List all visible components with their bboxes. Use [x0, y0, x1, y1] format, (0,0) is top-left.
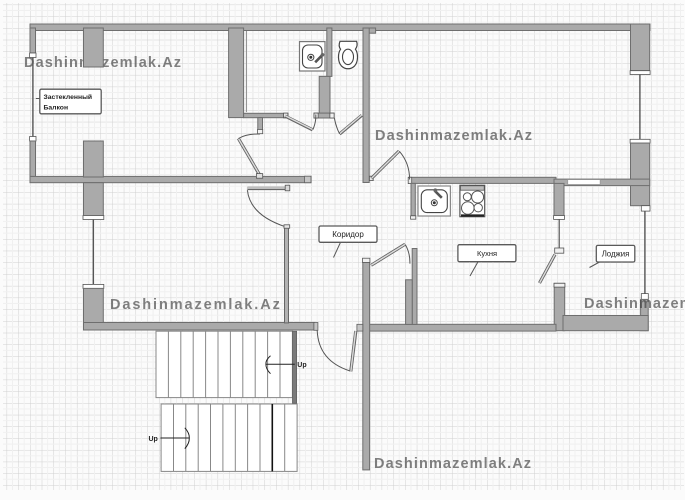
svg-text:Лоджия: Лоджия: [602, 250, 630, 259]
svg-text:Коридор: Коридор: [332, 230, 364, 239]
svg-text:Балкон: Балкон: [44, 105, 69, 112]
svg-text:Dashinmazemlak.Az: Dashinmazemlak.Az: [374, 456, 532, 472]
svg-text:Dashinmazemlak.Az: Dashinmazemlak.Az: [584, 296, 685, 312]
svg-text:Dashinmazemlak.Az: Dashinmazemlak.Az: [375, 128, 533, 144]
svg-text:Кухня: Кухня: [477, 249, 497, 258]
svg-text:Dashinmazemlak.Az: Dashinmazemlak.Az: [110, 297, 282, 313]
svg-text:Застекленный: Застекленный: [44, 93, 93, 101]
svg-text:Up: Up: [297, 362, 306, 369]
svg-text:Up: Up: [149, 436, 158, 443]
